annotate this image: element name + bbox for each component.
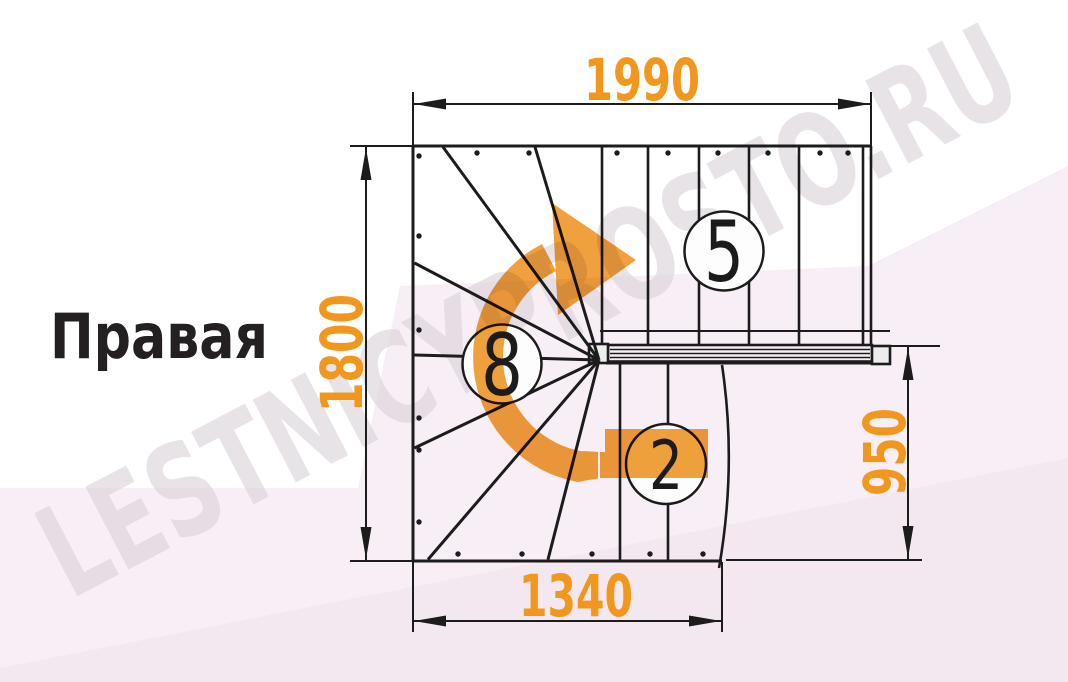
staircase-plan-page: LESTNICYPROSTO.RU	[0, 0, 1068, 682]
dimension-top-label: 1990	[584, 46, 700, 114]
upper-count-label: 5	[704, 203, 744, 301]
dimension-left-label: 1800	[308, 294, 376, 412]
handrail-post-right	[872, 346, 890, 364]
stair-plan-diagram: LESTNICYPROSTO.RU	[0, 0, 1068, 682]
dimension-bottom-label: 1340	[519, 562, 633, 630]
page-title: Правая	[50, 300, 268, 373]
winder-count-label: 8	[481, 316, 523, 416]
lower-count-label: 2	[649, 427, 683, 506]
dimension-right-label: 950	[851, 408, 919, 496]
